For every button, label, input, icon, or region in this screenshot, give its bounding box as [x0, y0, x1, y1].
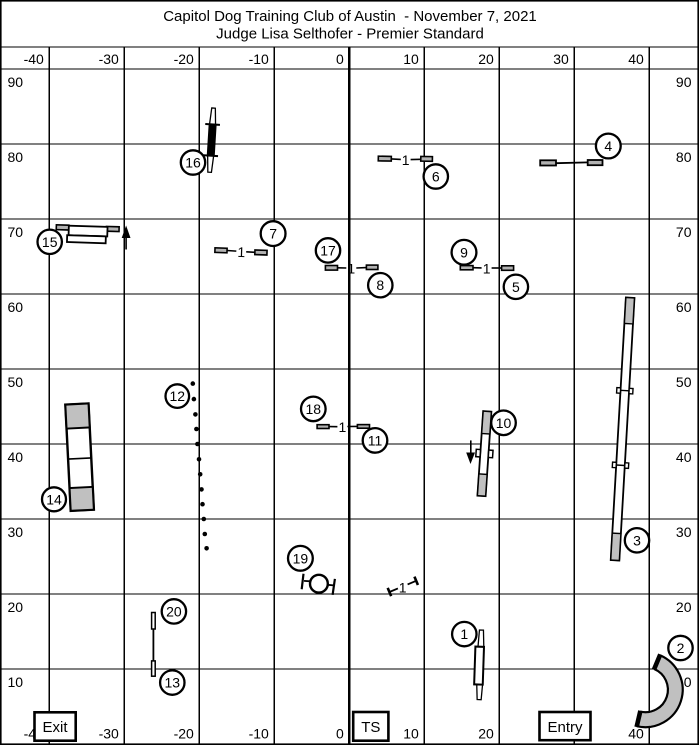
- svg-text:30: 30: [553, 51, 569, 67]
- svg-text:3: 3: [633, 532, 641, 548]
- svg-text:90: 90: [8, 74, 24, 90]
- svg-text:18: 18: [306, 401, 322, 417]
- svg-text:5: 5: [512, 279, 520, 295]
- svg-text:6: 6: [432, 169, 440, 185]
- svg-text:0: 0: [336, 51, 344, 67]
- svg-text:20: 20: [166, 603, 182, 619]
- svg-text:1: 1: [483, 260, 491, 276]
- svg-text:7: 7: [269, 226, 277, 242]
- svg-text:1: 1: [460, 626, 468, 642]
- svg-text:10: 10: [403, 51, 419, 67]
- svg-text:80: 80: [8, 149, 24, 165]
- svg-text:20: 20: [478, 726, 494, 742]
- svg-text:-20: -20: [174, 51, 194, 67]
- svg-text:9: 9: [460, 244, 468, 260]
- svg-text:4: 4: [604, 138, 612, 154]
- svg-text:20: 20: [478, 51, 494, 67]
- svg-text:80: 80: [676, 149, 692, 165]
- svg-text:-10: -10: [249, 51, 269, 67]
- svg-text:16: 16: [185, 155, 201, 171]
- svg-text:1: 1: [399, 580, 407, 596]
- svg-text:13: 13: [165, 675, 181, 691]
- svg-text:0: 0: [336, 726, 344, 742]
- svg-text:-30: -30: [99, 726, 119, 742]
- svg-text:70: 70: [676, 224, 692, 240]
- svg-text:1: 1: [347, 261, 355, 277]
- svg-text:10: 10: [496, 415, 512, 431]
- svg-text:40: 40: [8, 449, 24, 465]
- svg-text:-40: -40: [24, 51, 44, 67]
- svg-text:30: 30: [676, 524, 692, 540]
- svg-text:-20: -20: [174, 726, 194, 742]
- svg-text:70: 70: [8, 224, 24, 240]
- svg-text:50: 50: [676, 374, 692, 390]
- svg-text:60: 60: [8, 299, 24, 315]
- svg-text:10: 10: [8, 674, 24, 690]
- svg-text:-30: -30: [99, 51, 119, 67]
- svg-text:15: 15: [42, 234, 58, 250]
- svg-text:Capitol Dog Training Club of A: Capitol Dog Training Club of Austin - No…: [163, 8, 537, 25]
- svg-text:2: 2: [677, 640, 685, 656]
- svg-text:30: 30: [8, 524, 24, 540]
- svg-text:TS: TS: [361, 719, 380, 736]
- svg-text:1: 1: [237, 244, 246, 260]
- svg-text:Exit: Exit: [42, 719, 68, 736]
- svg-text:Judge Lisa Selthofer - Premier: Judge Lisa Selthofer - Premier Standard: [216, 25, 484, 42]
- svg-text:1: 1: [402, 152, 410, 168]
- svg-text:-10: -10: [249, 726, 269, 742]
- svg-text:40: 40: [676, 449, 692, 465]
- svg-text:12: 12: [170, 388, 186, 404]
- svg-text:Entry: Entry: [547, 719, 583, 736]
- svg-text:11: 11: [368, 432, 383, 448]
- svg-text:50: 50: [8, 374, 24, 390]
- svg-text:1: 1: [339, 419, 347, 435]
- svg-text:90: 90: [676, 74, 692, 90]
- svg-text:40: 40: [628, 51, 644, 67]
- svg-text:19: 19: [293, 550, 309, 566]
- svg-text:17: 17: [320, 242, 336, 258]
- svg-text:20: 20: [8, 599, 24, 615]
- svg-text:10: 10: [403, 726, 419, 742]
- svg-text:60: 60: [676, 299, 692, 315]
- svg-text:8: 8: [376, 277, 384, 293]
- svg-text:20: 20: [676, 599, 692, 615]
- svg-text:14: 14: [46, 491, 62, 507]
